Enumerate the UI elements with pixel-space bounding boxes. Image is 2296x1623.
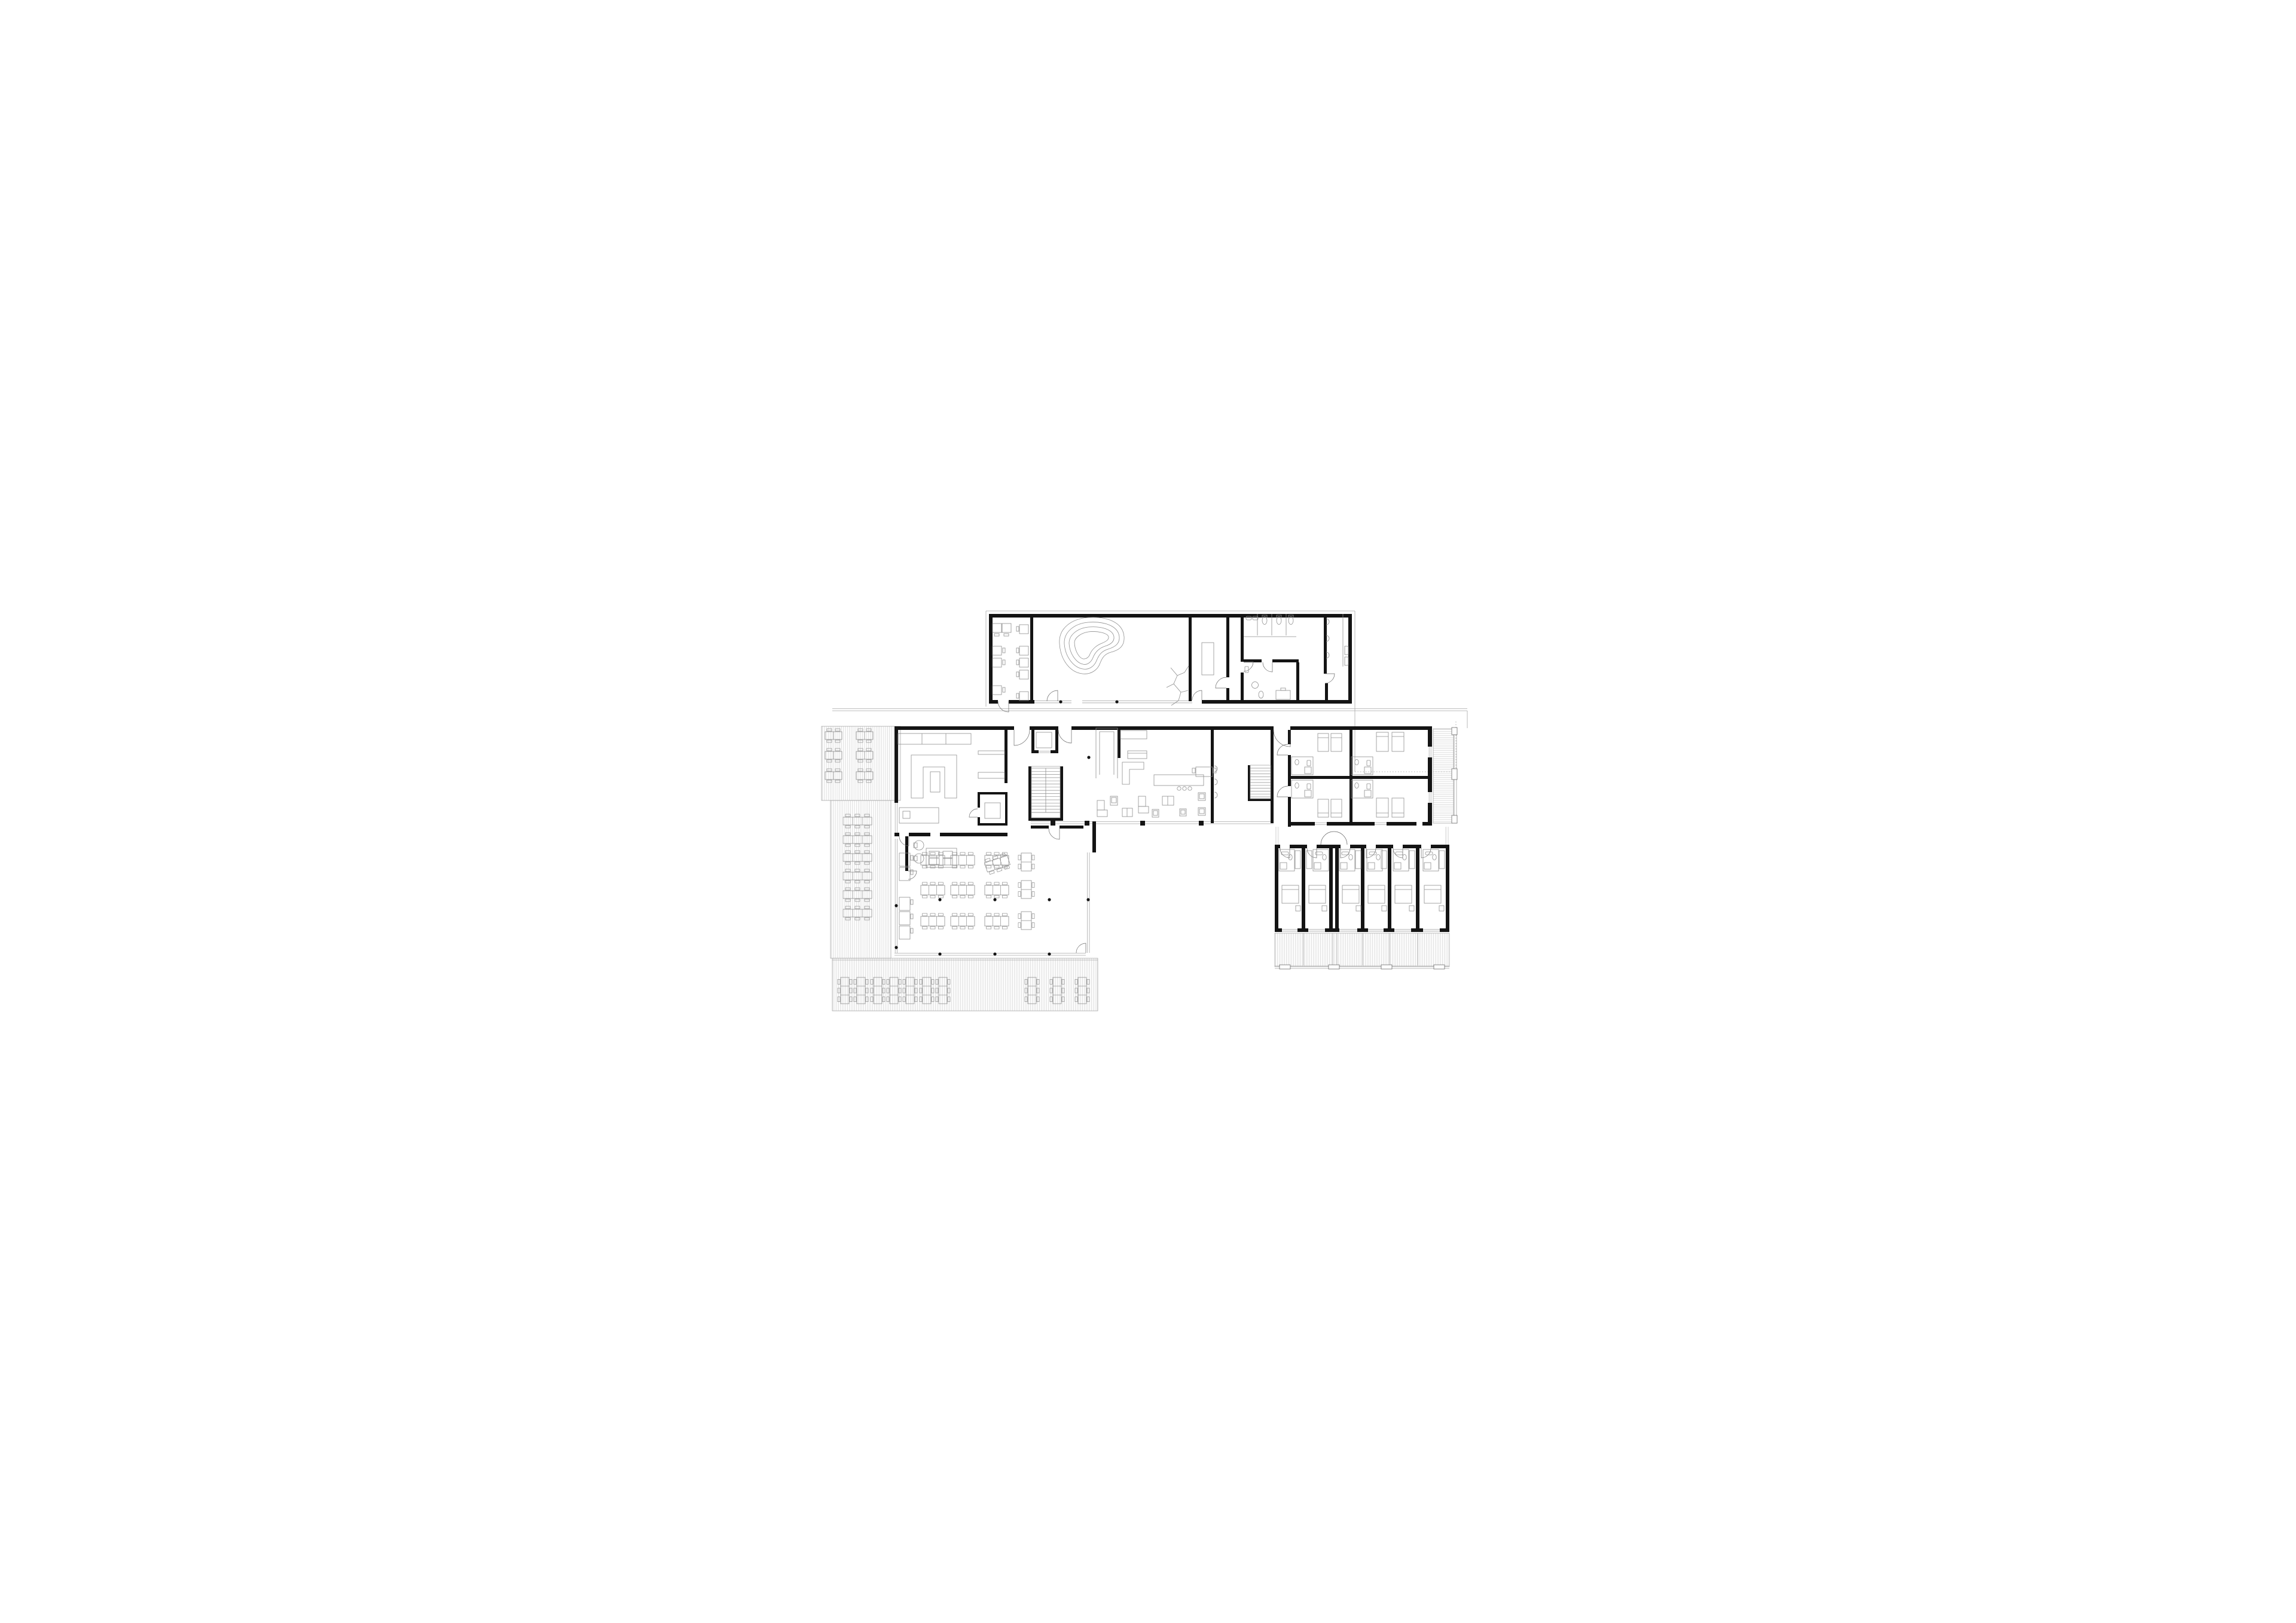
furniture-outline [899, 853, 910, 866]
fixture-outline [1307, 784, 1311, 789]
chair [855, 844, 860, 846]
wall-segment [989, 614, 993, 704]
table [921, 916, 945, 926]
chair [1018, 855, 1021, 860]
chair [915, 997, 917, 1001]
chair [936, 979, 938, 984]
door-swing-arc [1047, 690, 1058, 701]
chair [920, 988, 922, 993]
furniture-outline [1016, 660, 1019, 665]
chair [968, 895, 973, 898]
chair [938, 927, 943, 929]
furniture-outline [911, 870, 913, 875]
furniture-outline [1162, 796, 1174, 805]
chair [923, 927, 927, 929]
furniture-outline [1356, 906, 1361, 911]
wall-segment [1007, 726, 1014, 730]
furniture-outline [930, 772, 940, 792]
chair [923, 882, 927, 885]
bed-frame [1392, 732, 1404, 751]
wall-segment [1085, 821, 1089, 826]
chair [865, 814, 869, 817]
furniture-outline [1276, 690, 1290, 699]
table [921, 855, 945, 865]
table [985, 855, 1009, 865]
chair [865, 851, 869, 853]
furniture-outline [1202, 643, 1214, 675]
chair [960, 927, 965, 929]
bed-frame [1318, 799, 1329, 817]
structural-column [1059, 700, 1062, 703]
wall-segment [1411, 928, 1423, 932]
bed-frame [1318, 733, 1329, 751]
table [939, 977, 947, 1004]
furniture-outline [1305, 790, 1311, 797]
wall-segment [1296, 662, 1299, 704]
chair [855, 826, 860, 828]
chair [827, 760, 832, 762]
chair [994, 927, 999, 929]
bed [1282, 885, 1299, 903]
table-group [854, 977, 868, 1004]
structural-column [1086, 898, 1089, 901]
chair [838, 979, 840, 984]
wall-segment [1384, 928, 1394, 932]
floor-plan-canvas [689, 487, 1607, 1136]
furniture-outline [994, 634, 999, 636]
wall-segment [1325, 928, 1339, 932]
chair [968, 866, 973, 868]
chair [865, 906, 869, 909]
chair [1032, 922, 1034, 927]
chair [899, 988, 901, 993]
chair [845, 814, 850, 817]
bed-frame [1376, 798, 1388, 817]
furniture-path [1167, 684, 1174, 687]
bed [1424, 885, 1441, 903]
bed-frame [1424, 885, 1441, 903]
chair [968, 882, 973, 885]
table-group [985, 913, 1009, 929]
chair [938, 866, 943, 868]
table [890, 977, 898, 1004]
deck-border [1275, 933, 1449, 967]
furniture-outline [1322, 906, 1327, 911]
structural-column [1048, 898, 1051, 901]
wall-segment [1376, 845, 1393, 848]
table [857, 977, 865, 1004]
structural-column [993, 952, 996, 955]
door-swing-arc [1263, 662, 1272, 672]
deck-plank-hatch [1276, 933, 1448, 967]
floor-plan-drawing [689, 487, 1607, 1136]
wall-segment [1275, 845, 1280, 848]
toilet-fixture [1355, 783, 1358, 788]
chair [923, 852, 927, 855]
furniture-outline [1128, 751, 1147, 759]
chair [855, 906, 860, 909]
furniture-outline [993, 658, 1002, 667]
wall-segment [894, 730, 898, 803]
bed [1331, 733, 1342, 751]
chair [1087, 988, 1089, 993]
furniture-outline [1364, 790, 1371, 797]
table-divider [1000, 858, 1003, 867]
chair [930, 852, 935, 855]
chair [865, 888, 869, 890]
wall-segment [1055, 728, 1058, 753]
chair [1032, 913, 1034, 918]
furniture-outline [1138, 806, 1149, 813]
wall-segment [1361, 848, 1364, 928]
chair [845, 881, 850, 883]
wall-segment [1118, 728, 1120, 758]
chair [987, 882, 991, 885]
chair [865, 862, 869, 864]
toilet-fixture [1295, 759, 1299, 765]
door-swing-arc [1192, 690, 1202, 700]
table [1053, 977, 1061, 1004]
chair [845, 906, 850, 909]
wall-segment [1060, 766, 1063, 821]
chair [936, 988, 938, 993]
toilet-fixture [1403, 854, 1406, 860]
chair [854, 997, 856, 1001]
chair [883, 979, 885, 984]
table [1078, 977, 1086, 1004]
chair [845, 918, 850, 920]
wall-segment [1291, 822, 1315, 826]
table [843, 817, 872, 825]
chair [987, 852, 991, 855]
table [843, 836, 872, 843]
chair [968, 852, 973, 855]
furniture-path [1171, 668, 1181, 701]
deck-plank-hatch [1275, 827, 1278, 845]
furniture-outline [1281, 688, 1286, 690]
toilet-fixture [1323, 854, 1326, 860]
wall-segment [894, 726, 1007, 730]
furniture-outline [1097, 810, 1107, 817]
layer-walls [894, 614, 1449, 932]
toilet-fixture [1277, 616, 1281, 624]
chair [930, 927, 935, 929]
chair [1018, 882, 1021, 887]
table-group [1018, 853, 1034, 871]
furniture-outline [1306, 851, 1312, 869]
table [1028, 977, 1036, 1004]
furniture-outline [1016, 693, 1019, 698]
wall-segment [978, 792, 980, 808]
chair [987, 866, 991, 868]
furniture-outline [1097, 800, 1104, 810]
wall-segment [1431, 845, 1449, 848]
chair [930, 866, 935, 868]
furniture-path [1177, 673, 1184, 676]
wall-segment [1051, 821, 1055, 826]
layer-stairs [1031, 765, 1271, 818]
furniture-outline [1019, 625, 1028, 634]
wall-segment [909, 833, 930, 836]
door-swing-arc [1049, 829, 1060, 839]
furniture-outline [1004, 634, 1009, 636]
chair [865, 881, 869, 883]
wall-segment [1416, 848, 1419, 928]
table [906, 977, 914, 1004]
furniture-outline [1381, 851, 1387, 869]
chair [855, 888, 860, 890]
chair [1062, 979, 1064, 984]
table [985, 885, 1009, 895]
table-group [985, 882, 1009, 898]
table-group [951, 913, 975, 929]
chair [952, 913, 957, 916]
fixture-outline [1367, 784, 1370, 789]
railing-post [1434, 965, 1445, 969]
railing-post [1452, 815, 1457, 823]
chair [994, 913, 999, 916]
bed-frame [1331, 799, 1342, 817]
toilet-fixture [1262, 616, 1267, 624]
wall-segment [1028, 818, 1063, 821]
chair [845, 826, 850, 828]
rotated-group [984, 852, 1011, 875]
furniture-outline [911, 914, 913, 919]
furniture-path [911, 755, 957, 798]
chair [845, 844, 850, 846]
deck-border [831, 800, 891, 958]
wall-segment [1327, 822, 1375, 826]
toilet-fixture [1433, 854, 1436, 860]
layer-foyer-lounge [1096, 728, 1217, 817]
table-group [843, 869, 872, 883]
wall-segment [989, 700, 998, 704]
wall-segment [1403, 845, 1421, 848]
wall-segment [1051, 750, 1058, 753]
wall-segment [1241, 614, 1244, 662]
chair [994, 895, 999, 898]
chair [855, 918, 860, 920]
chair [968, 913, 973, 916]
chair [960, 852, 965, 855]
chair [952, 852, 957, 855]
chair [915, 979, 917, 984]
toilet-fixture [1376, 854, 1380, 860]
door-swing-arc [1325, 674, 1335, 683]
chair [865, 844, 869, 846]
wall-segment [1140, 821, 1145, 826]
toilet-fixture [1289, 616, 1293, 624]
chair [994, 852, 999, 855]
chair [938, 895, 943, 898]
chair [845, 899, 850, 901]
chair [1002, 895, 1007, 898]
furniture-outline [993, 686, 1002, 695]
table-group [921, 852, 945, 868]
fixture-circle [914, 840, 924, 850]
door-swing-arc [1076, 943, 1086, 953]
chair [930, 913, 935, 916]
furniture-outline [1016, 672, 1019, 677]
wall-segment [1213, 726, 1274, 730]
wall-segment [1060, 826, 1083, 829]
door-swing-arc [1277, 744, 1288, 755]
fixture-outline [1369, 852, 1376, 855]
bed-frame [1342, 885, 1359, 903]
furniture-outline [1305, 767, 1311, 774]
chair [827, 729, 832, 731]
door-swing-arc [1216, 677, 1226, 688]
bed-frame [1392, 798, 1404, 817]
table [841, 977, 849, 1004]
furniture-outline [1439, 851, 1445, 869]
furniture-path [1214, 766, 1217, 772]
furniture-outline [911, 900, 913, 904]
bed-frame [1309, 885, 1326, 903]
chair [827, 748, 832, 751]
wall-segment [1092, 821, 1096, 852]
table [951, 916, 975, 926]
furniture-outline [1341, 863, 1347, 869]
chair [960, 913, 965, 916]
wall-segment [1302, 848, 1305, 928]
stair-treads [1250, 768, 1271, 797]
structural-column [1087, 756, 1090, 759]
furniture-outline [1036, 732, 1052, 748]
door-swing-arc [1421, 848, 1431, 858]
chair [850, 997, 852, 1001]
wall-segment [940, 833, 1007, 836]
furniture-outline [943, 851, 952, 858]
chair [936, 997, 938, 1001]
bed-frame [1376, 732, 1388, 751]
chair [827, 780, 832, 783]
table-group [838, 977, 852, 1004]
deck-border [1433, 729, 1454, 823]
bed-frame [1331, 733, 1342, 751]
wall-segment [1005, 792, 1007, 826]
wall-segment [1189, 614, 1192, 701]
table-group [825, 748, 842, 762]
furniture-outline [929, 858, 939, 864]
table-group [843, 833, 872, 846]
bed [1376, 732, 1388, 751]
chair [930, 882, 935, 885]
wall-segment [1031, 826, 1049, 829]
chair [1032, 891, 1034, 896]
chair [960, 895, 965, 898]
chair [1032, 855, 1034, 860]
table-group [984, 852, 1011, 875]
furniture-outline [1355, 851, 1361, 869]
railing-post [1381, 965, 1392, 969]
table [923, 977, 931, 1004]
chair [952, 927, 957, 929]
furniture-path [1181, 690, 1188, 692]
table [843, 872, 872, 880]
chair [930, 895, 935, 898]
wall-segment [1388, 848, 1391, 928]
furniture-outline [1003, 660, 1005, 665]
structural-column [1048, 952, 1051, 955]
chair [883, 988, 885, 993]
chair [1018, 922, 1021, 927]
chair [1037, 988, 1039, 993]
door-swing-arc [1058, 730, 1071, 743]
wall-segment [1349, 730, 1352, 776]
bed [1395, 885, 1412, 903]
wall-segment [1387, 822, 1416, 826]
chair [866, 979, 868, 984]
chair [968, 927, 973, 929]
chair [845, 851, 850, 853]
wall-segment [978, 792, 1007, 794]
chair [855, 881, 860, 883]
chair [1087, 979, 1089, 984]
furniture-outline [1112, 797, 1116, 803]
chair [987, 927, 991, 929]
chair [854, 988, 856, 993]
table-group [843, 814, 872, 828]
page-background [0, 0, 2296, 1623]
furniture-outline [1138, 796, 1146, 806]
chair [883, 997, 885, 1001]
chair [855, 833, 860, 835]
table [874, 977, 882, 1004]
chair [838, 988, 840, 993]
layer-dining-room [899, 848, 1034, 939]
chair [915, 988, 917, 993]
table [843, 909, 872, 917]
chair [938, 913, 943, 916]
table [843, 854, 872, 861]
furniture-path [1214, 792, 1217, 798]
furniture-path [1096, 728, 1118, 778]
furniture-outline [903, 811, 910, 818]
wall-segment [1291, 776, 1432, 779]
structural-column [1115, 700, 1118, 703]
chair [952, 882, 957, 885]
furniture-path [1100, 732, 1114, 775]
chair [1032, 882, 1034, 887]
furniture-outline [1019, 658, 1028, 667]
furniture-outline [1120, 730, 1147, 739]
furniture-outline [1368, 863, 1375, 869]
wall-segment [1031, 750, 1039, 753]
furniture-outline [1295, 851, 1300, 869]
door-swing-arc [998, 701, 1009, 712]
wall-segment [1335, 848, 1339, 928]
wall-segment [1357, 928, 1368, 932]
bed [1376, 798, 1388, 817]
furniture-path [1122, 762, 1144, 784]
chair [1062, 997, 1064, 1001]
chair [866, 997, 868, 1001]
table-group [921, 913, 945, 929]
structural-column [993, 898, 996, 901]
chair [1018, 913, 1021, 918]
wall-segment [1275, 928, 1282, 932]
table-group [843, 851, 872, 864]
chair [1032, 864, 1034, 869]
railing-post [1452, 769, 1457, 780]
table-group [951, 882, 975, 898]
chair [838, 997, 840, 1001]
table [985, 916, 1009, 926]
table [951, 855, 975, 865]
fixture-circle [1188, 786, 1192, 790]
chair [1002, 927, 1007, 929]
